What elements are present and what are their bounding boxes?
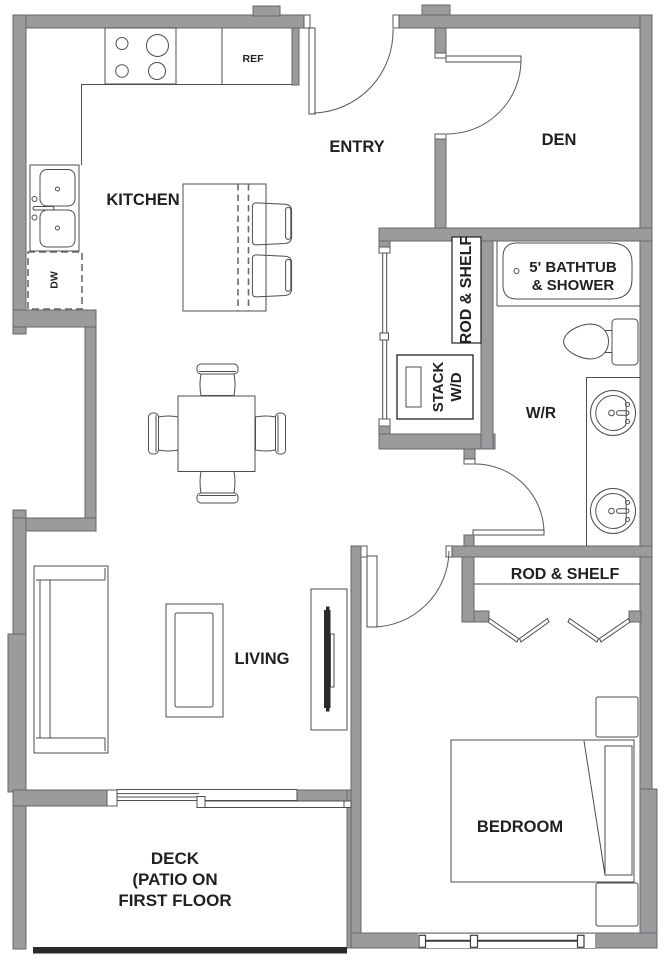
svg-text:W/D: W/D xyxy=(448,372,465,401)
svg-text:5' BATHTUB: 5' BATHTUB xyxy=(529,259,617,276)
svg-text:ROD & SHELF: ROD & SHELF xyxy=(511,566,620,583)
svg-text:STACK: STACK xyxy=(430,362,447,413)
svg-text:FIRST FLOOR: FIRST FLOOR xyxy=(118,891,231,910)
svg-text:& SHOWER: & SHOWER xyxy=(532,277,615,294)
svg-text:KITCHEN: KITCHEN xyxy=(106,191,179,209)
svg-text:(PATIO ON: (PATIO ON xyxy=(132,870,217,889)
svg-text:BEDROOM: BEDROOM xyxy=(477,818,563,836)
svg-text:DECK: DECK xyxy=(151,849,200,868)
svg-text:W/R: W/R xyxy=(526,405,556,422)
svg-text:LIVING: LIVING xyxy=(234,650,289,668)
svg-text:ROD & SHELF: ROD & SHELF xyxy=(458,236,475,345)
svg-text:REF: REF xyxy=(243,53,265,65)
svg-text:DEN: DEN xyxy=(542,131,577,149)
svg-text:DW: DW xyxy=(49,271,61,289)
svg-text:ENTRY: ENTRY xyxy=(329,138,384,156)
